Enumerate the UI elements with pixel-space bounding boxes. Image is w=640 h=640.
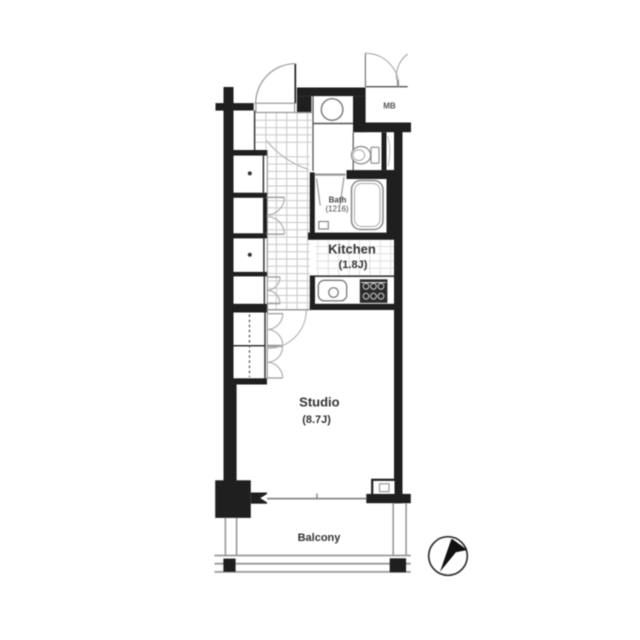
svg-text:(1.8J): (1.8J) [339, 259, 368, 271]
svg-text:Kitchen: Kitchen [328, 242, 376, 257]
svg-text:MB: MB [383, 101, 396, 110]
svg-text:(8.7J): (8.7J) [302, 414, 331, 426]
svg-text:(1216): (1216) [325, 205, 348, 214]
svg-text:Bath: Bath [329, 196, 347, 205]
svg-text:Studio: Studio [299, 395, 339, 410]
svg-text:Balcony: Balcony [298, 532, 342, 544]
